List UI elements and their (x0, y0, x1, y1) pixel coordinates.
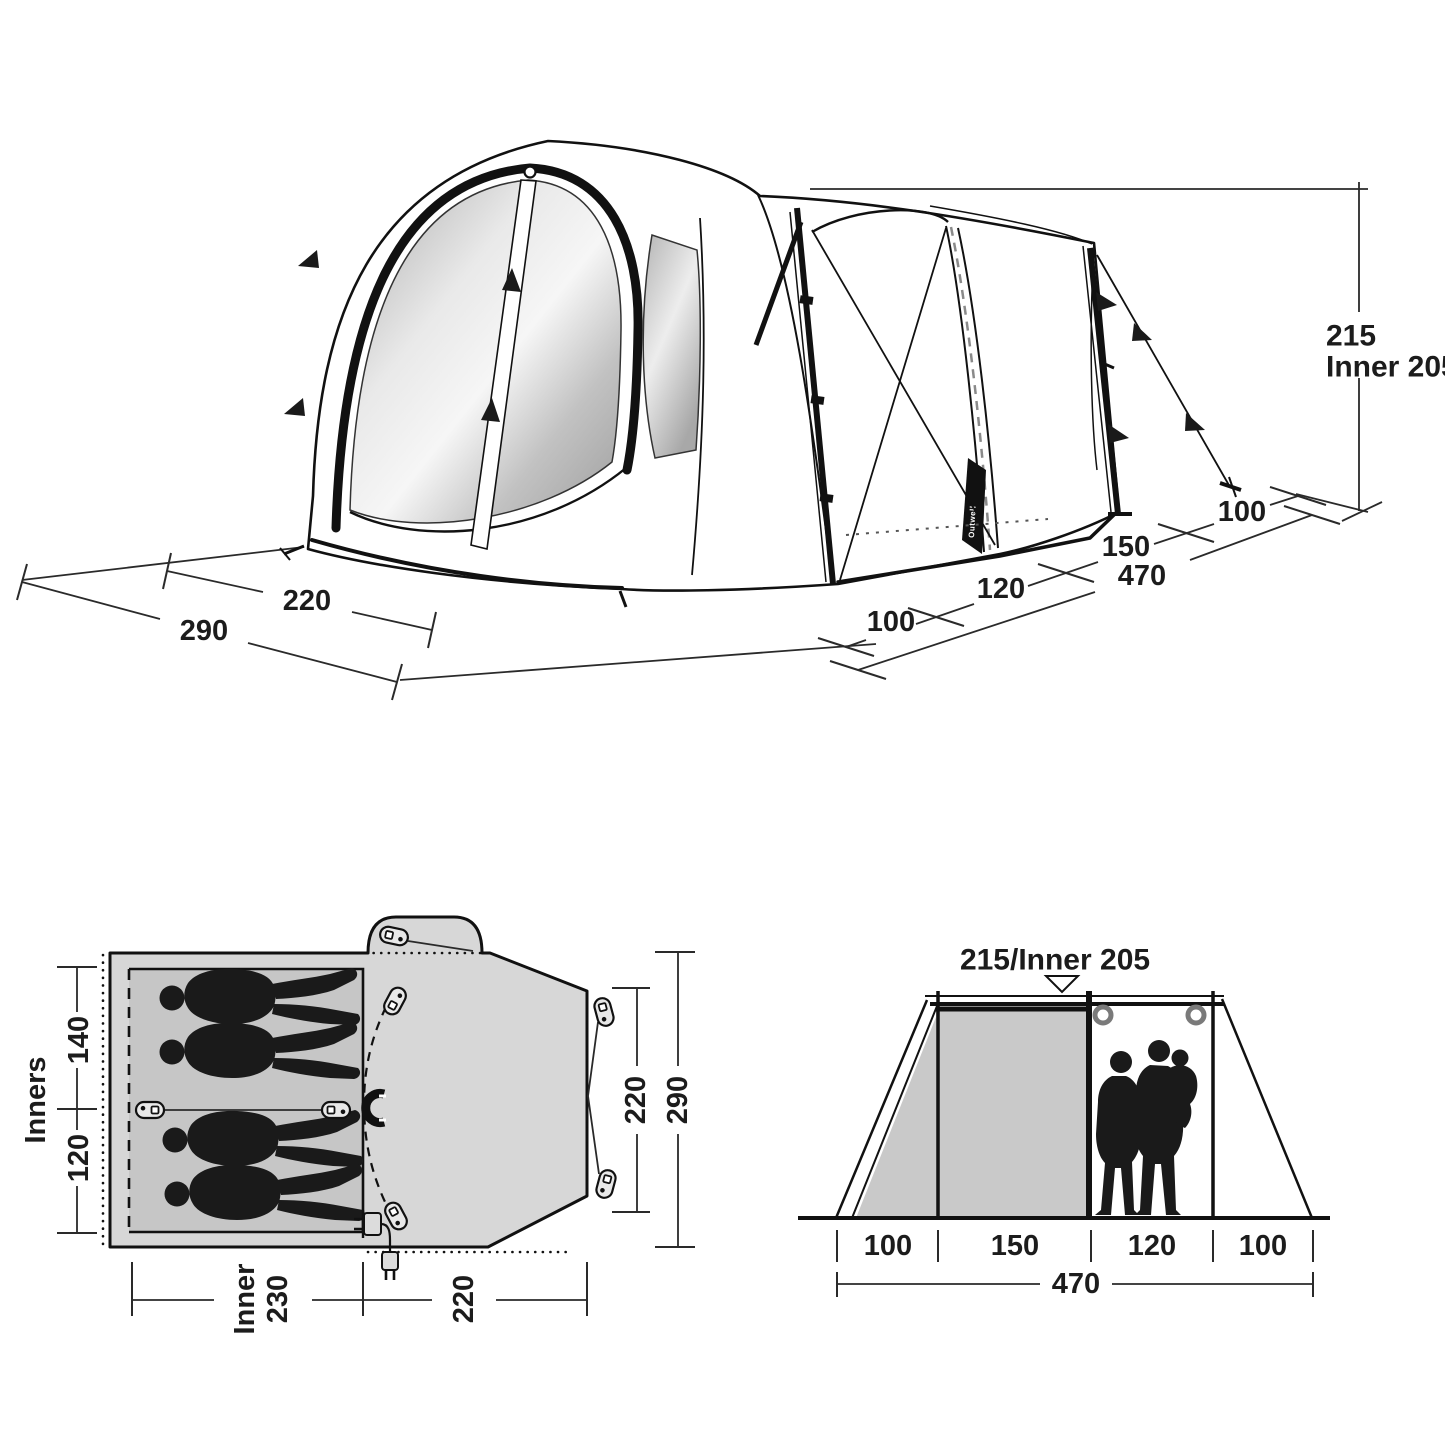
peg-flag-icon (284, 398, 305, 416)
dim-front-inner-width: 220 (283, 585, 331, 617)
diagram-svg: 220 290 100 120 150 100 470 215 (0, 0, 1445, 1445)
dim-seg-living: 120 (977, 573, 1025, 605)
guy-flag-icon (1132, 323, 1152, 341)
brand-tag-label: Outwell (967, 505, 978, 538)
floor-plan-view: 140 120 Inners Inner 230 220 220 290 (20, 917, 695, 1334)
elevation-bottom-dimensions: 100 150 120 100 470 (837, 1230, 1313, 1300)
dim-front-total-width-plan: 290 (662, 1076, 694, 1124)
dim-bottom-inner-word: Inner (229, 1264, 261, 1335)
elevation-view: 215/Inner 205 (798, 944, 1330, 1301)
rear-pole (1090, 248, 1118, 514)
elev-seg3: 120 (1128, 1230, 1176, 1262)
dim-inner-seg-bottom: 120 (63, 1134, 95, 1182)
elev-seg2: 150 (991, 1230, 1039, 1262)
floorplan-right-dimensions: 220 290 (612, 952, 695, 1247)
person-silhouette-standing (1095, 1040, 1197, 1215)
vent-ring-icon (525, 167, 536, 178)
dim-seg-guy-front: 100 (867, 606, 915, 638)
power-plug-icon (382, 1252, 398, 1280)
dim-inner-height: Inner 205 (1326, 351, 1445, 384)
perspective-ground-dimensions-right: 100 120 150 100 470 (818, 487, 1382, 679)
curtain-ring-icon (1188, 1007, 1204, 1023)
perspective-height-dimension: 215 Inner 205 (810, 182, 1445, 511)
elevation-title: 215/Inner 205 (960, 944, 1150, 977)
tent-spec-diagram: 220 290 100 120 150 100 470 215 (0, 0, 1445, 1445)
elev-seg1: 100 (864, 1230, 912, 1262)
dim-seg-mid: 150 (1102, 531, 1150, 563)
dim-height: 215 (1326, 320, 1376, 353)
peg-flag-icon (298, 250, 319, 268)
floorplan-bottom-dimension: Inner 230 220 (132, 1262, 587, 1334)
inner-tent-fill (936, 1011, 1087, 1217)
pole-clip-icon (1096, 292, 1117, 311)
pole-clip-icon (811, 395, 825, 405)
side-window-glass (643, 235, 700, 458)
pole-clip-icon (1108, 424, 1129, 443)
elev-total: 470 (1052, 1268, 1100, 1300)
tent-3d-drawing: Outwell (280, 141, 1241, 607)
dim-front-total-width: 290 (180, 615, 228, 647)
pole-clip-icon (800, 295, 814, 305)
elev-seg4: 100 (1239, 1230, 1287, 1262)
dim-front-inner-width-plan: 220 (620, 1076, 652, 1124)
curtain-ring-icon (1095, 1007, 1111, 1023)
guy-flag-icon (1185, 413, 1205, 431)
floorplan-left-dimension: 140 120 Inners (20, 967, 97, 1233)
dim-seg-guy-rear: 100 (1218, 496, 1266, 528)
dim-side-total: 470 (1118, 560, 1166, 592)
dim-bottom-inner-value: 230 (262, 1275, 294, 1323)
sloped-wall-fill (856, 1012, 938, 1218)
pointer-triangle-icon (1046, 976, 1078, 992)
dim-bottom-porch: 220 (448, 1275, 480, 1323)
dim-inner-seg-top: 140 (63, 1016, 95, 1064)
inners-label: Inners (20, 1056, 52, 1143)
perspective-view: 220 290 100 120 150 100 470 215 (17, 141, 1445, 700)
